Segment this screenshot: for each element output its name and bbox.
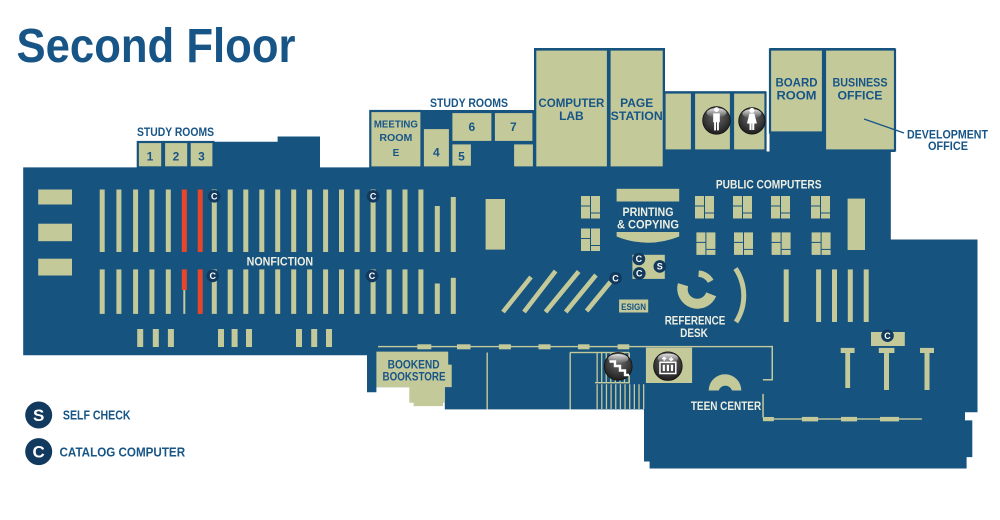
svg-text:C: C	[884, 331, 891, 341]
svg-text:Second Floor: Second Floor	[17, 20, 296, 73]
svg-text:C: C	[370, 192, 377, 202]
svg-text:1: 1	[147, 150, 154, 164]
svg-text:LAB: LAB	[559, 109, 584, 123]
svg-text:2: 2	[173, 150, 180, 164]
svg-text:4: 4	[433, 146, 440, 160]
svg-text:C: C	[636, 269, 643, 279]
svg-text:& COPYING: & COPYING	[617, 218, 679, 232]
svg-text:BOOKSTORE: BOOKSTORE	[383, 370, 446, 384]
svg-text:STATION: STATION	[611, 109, 663, 123]
svg-text:E: E	[393, 148, 400, 159]
svg-text:ESIGN: ESIGN	[621, 302, 646, 313]
svg-text:ROOM: ROOM	[379, 133, 412, 144]
svg-text:S: S	[657, 262, 663, 272]
svg-text:COMPUTER: COMPUTER	[538, 96, 604, 110]
svg-text:C: C	[209, 271, 216, 281]
svg-text:BUSINESS: BUSINESS	[833, 76, 888, 90]
svg-text:DESK: DESK	[680, 326, 708, 340]
svg-text:OFFICE: OFFICE	[838, 89, 883, 103]
svg-text:BOARD: BOARD	[776, 76, 818, 90]
svg-text:6: 6	[469, 120, 476, 134]
svg-text:TEEN CENTER: TEEN CENTER	[691, 399, 762, 413]
svg-text:C: C	[369, 271, 376, 281]
svg-text:CATALOG COMPUTER: CATALOG COMPUTER	[60, 444, 186, 459]
svg-text:S: S	[33, 406, 44, 425]
svg-text:MEETING: MEETING	[374, 120, 418, 131]
svg-text:PUBLIC COMPUTERS: PUBLIC COMPUTERS	[716, 178, 822, 192]
svg-text:PAGE: PAGE	[620, 96, 653, 110]
svg-text:5: 5	[458, 150, 465, 164]
svg-text:7: 7	[510, 120, 517, 134]
svg-text:STUDY ROOMS: STUDY ROOMS	[430, 98, 508, 110]
svg-text:3: 3	[198, 150, 205, 164]
svg-text:ROOM: ROOM	[777, 89, 817, 103]
svg-text:STUDY ROOMS: STUDY ROOMS	[137, 127, 214, 139]
svg-text:SELF CHECK: SELF CHECK	[63, 408, 131, 423]
svg-text:C: C	[636, 254, 643, 264]
svg-text:C: C	[211, 192, 218, 202]
svg-text:NONFICTION: NONFICTION	[247, 255, 314, 269]
svg-text:C: C	[33, 443, 45, 462]
svg-text:OFFICE: OFFICE	[928, 141, 968, 153]
svg-text:DEVELOPMENT: DEVELOPMENT	[907, 130, 988, 142]
svg-text:C: C	[612, 273, 619, 283]
